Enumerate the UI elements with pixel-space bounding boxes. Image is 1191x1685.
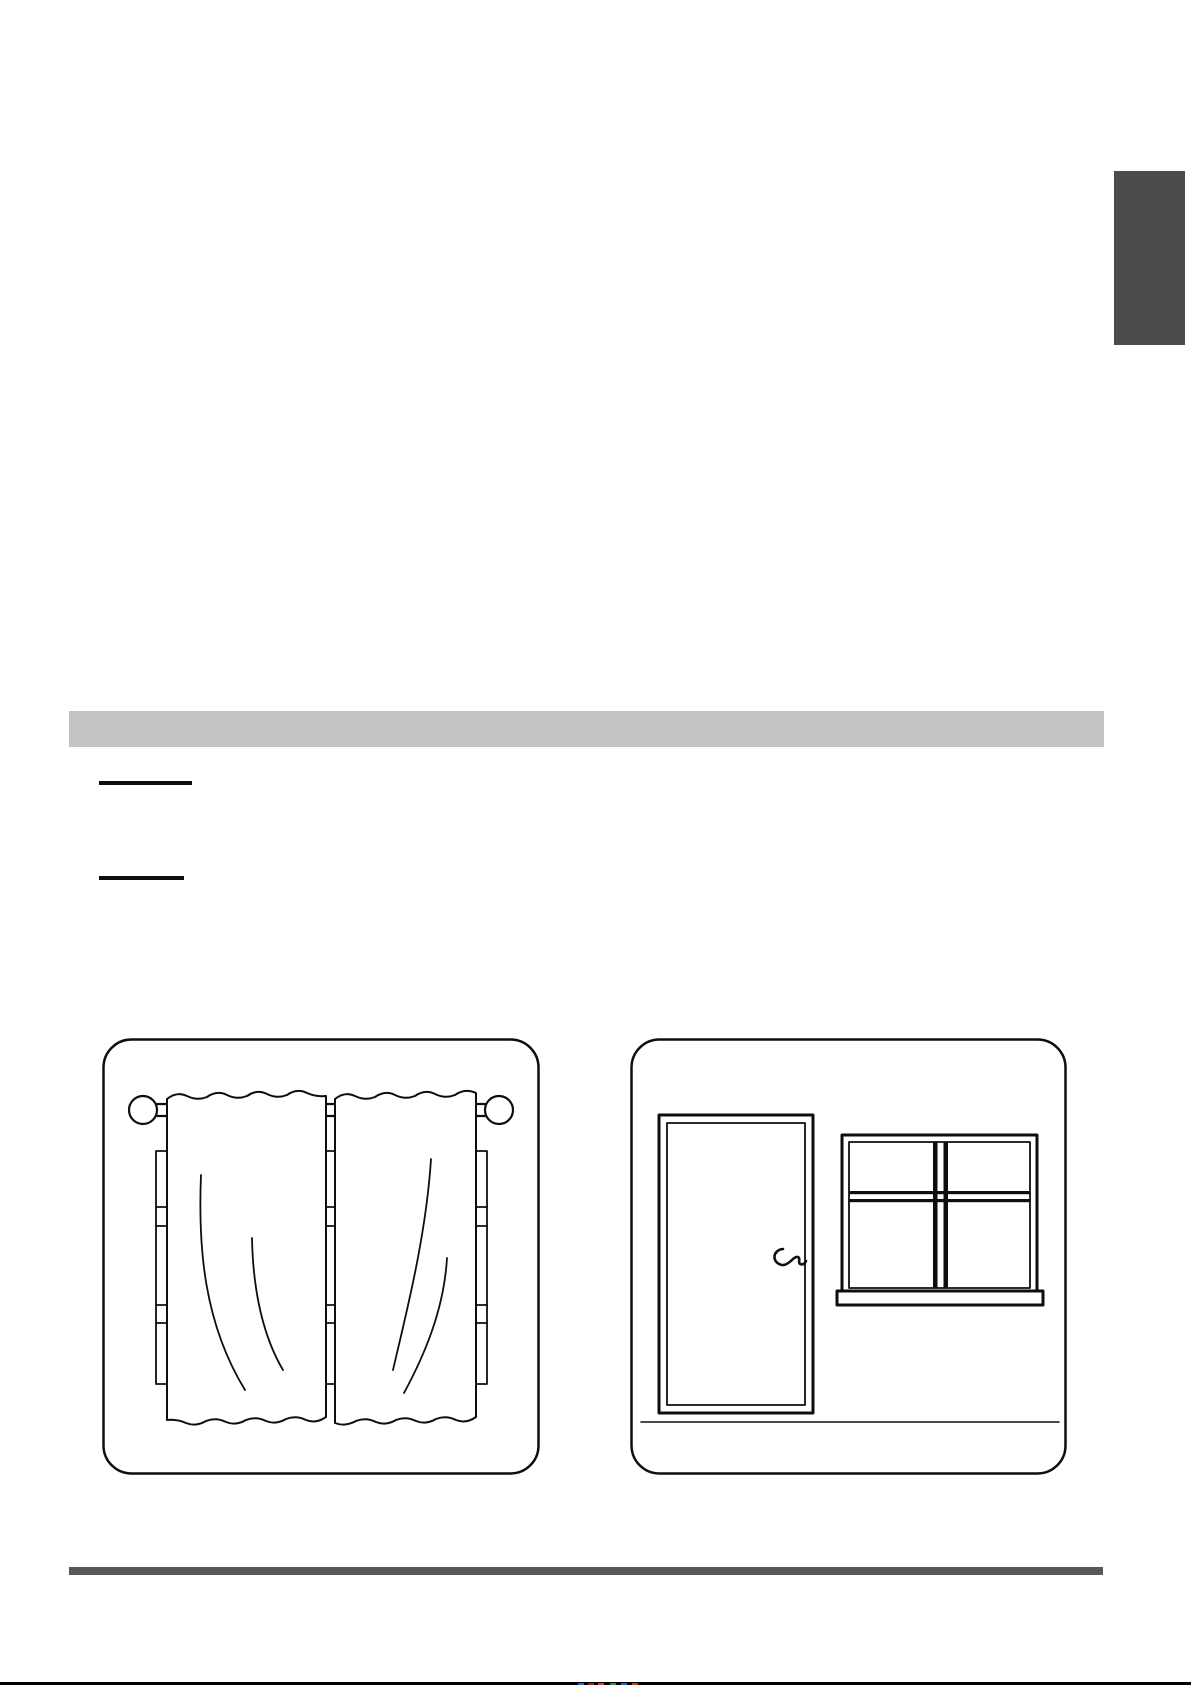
manual-page: [0, 0, 1191, 1685]
curtain-left-panel: [167, 1091, 326, 1425]
heading-underline: [99, 781, 192, 785]
window-sill: [837, 1291, 1043, 1305]
chapter-edge-tab: [1114, 171, 1185, 345]
footer-divider-bar: [69, 1567, 1103, 1575]
section-divider-bar: [69, 711, 1104, 747]
curtain-right-panel: [335, 1091, 476, 1425]
figure-curtains: [102, 1038, 540, 1475]
door: [659, 1115, 813, 1413]
figure-door-window: [630, 1038, 1067, 1475]
window: [837, 1135, 1043, 1305]
heading-underline: [99, 876, 184, 880]
